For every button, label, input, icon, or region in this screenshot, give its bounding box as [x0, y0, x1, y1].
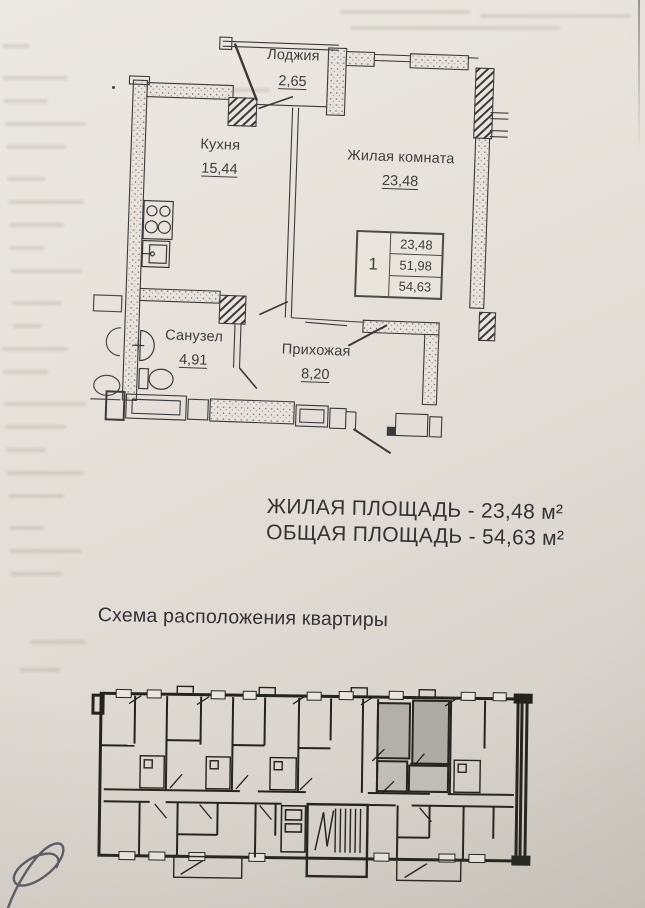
building-plan-drawing [0, 0, 645, 908]
signature-mark [0, 828, 130, 908]
building-outline [91, 689, 531, 864]
building-floor-plan [0, 0, 645, 908]
elevator-icon [281, 806, 306, 852]
stairs-icon [307, 804, 368, 877]
highlighted-apartment [377, 700, 449, 792]
scanned-document-photo: Лоджия 2,65 Кухня 15,44 Жилая комната 23… [0, 0, 645, 908]
balconies [174, 856, 461, 881]
